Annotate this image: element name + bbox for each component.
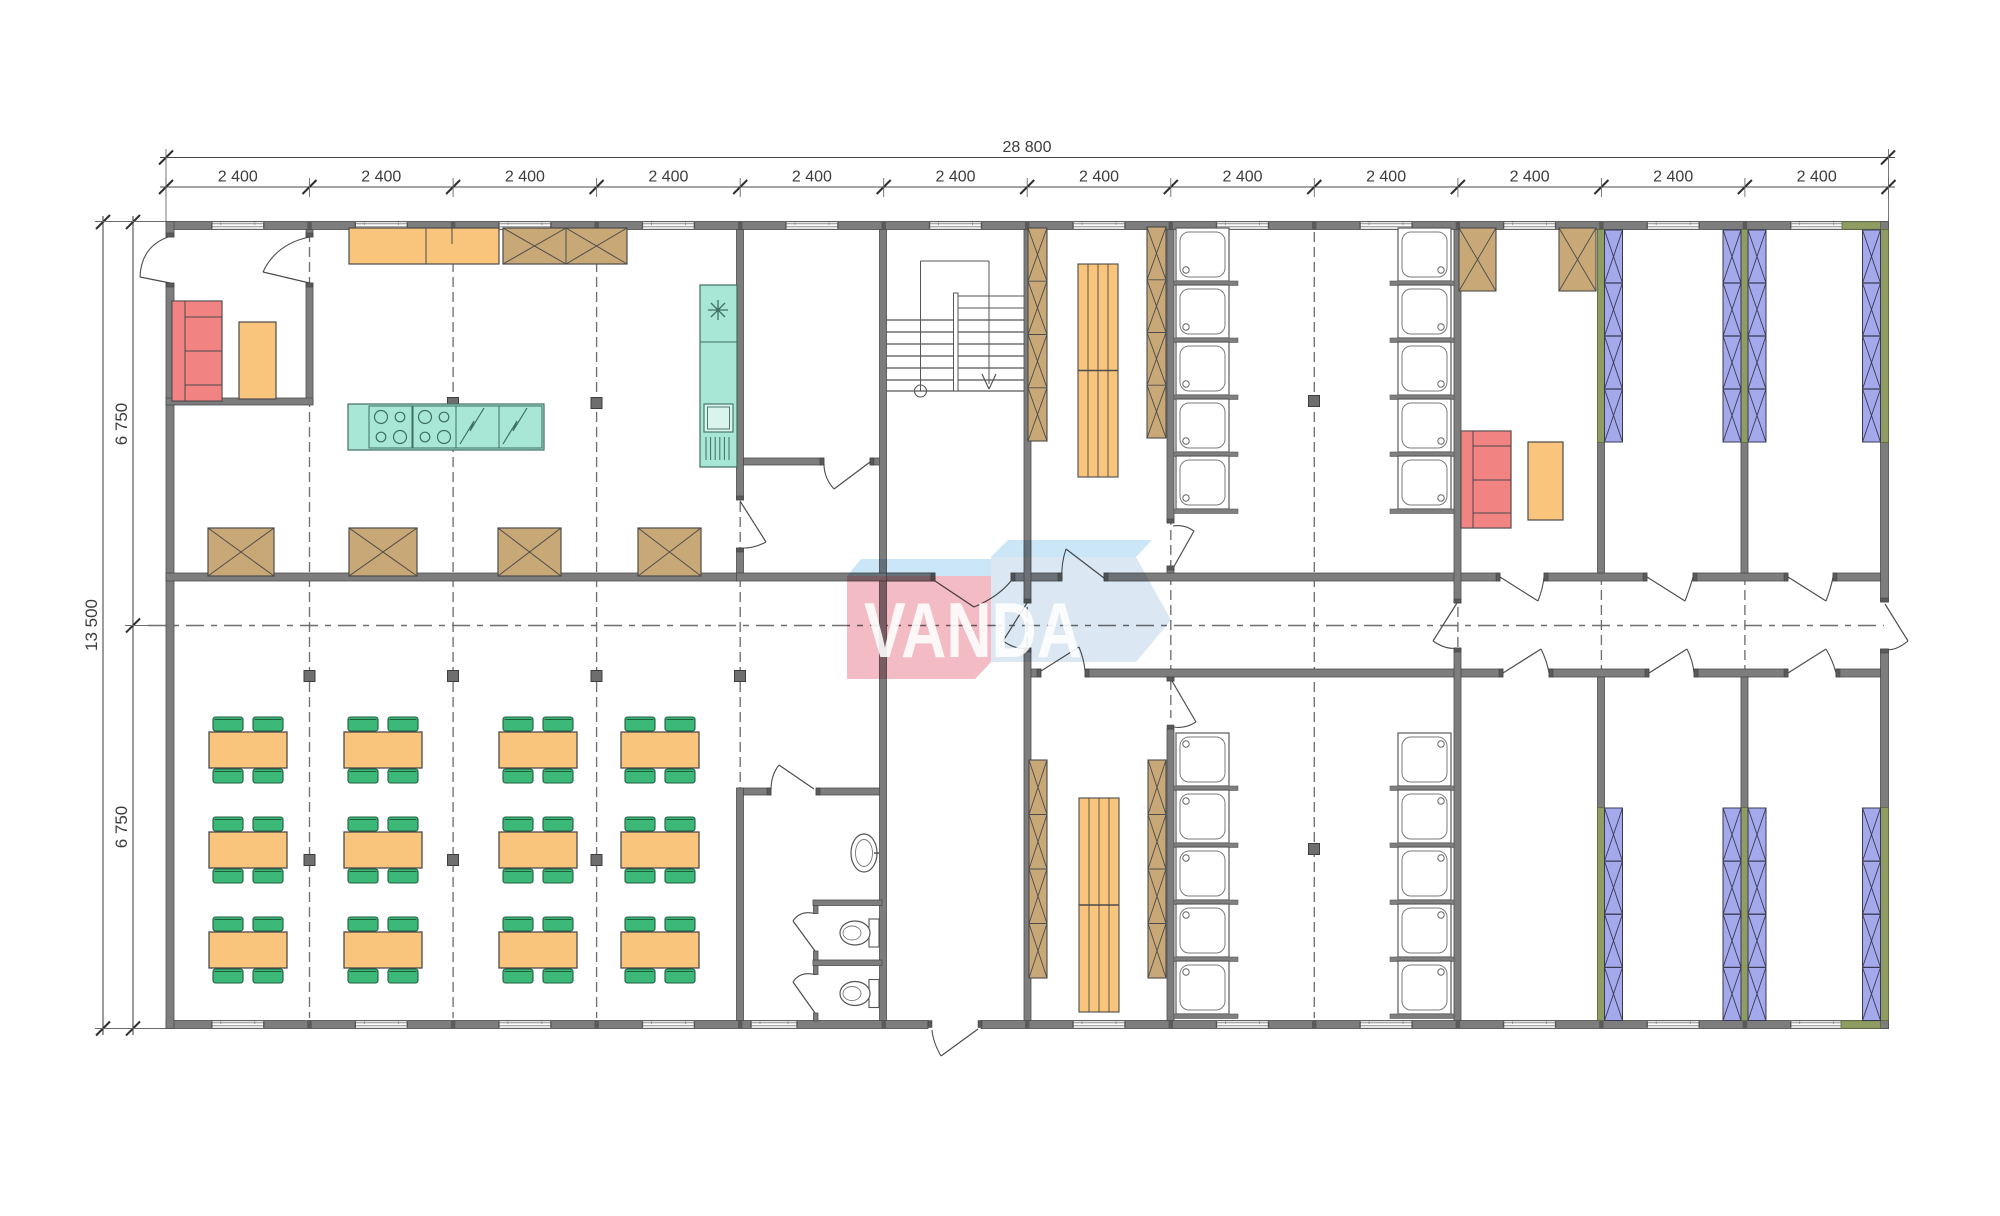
svg-text:6 750: 6 750 (112, 806, 131, 849)
svg-text:VANDA: VANDA (864, 586, 1082, 674)
svg-text:2 400: 2 400 (935, 169, 975, 186)
svg-text:2 400: 2 400 (1366, 169, 1406, 186)
svg-text:2 400: 2 400 (1222, 169, 1262, 186)
svg-text:28 800: 28 800 (1003, 139, 1052, 156)
svg-text:2 400: 2 400 (1797, 169, 1837, 186)
svg-text:2 400: 2 400 (218, 169, 258, 186)
svg-text:2 400: 2 400 (792, 169, 832, 186)
svg-text:6 750: 6 750 (112, 403, 131, 446)
svg-text:2 400: 2 400 (361, 169, 401, 186)
svg-text:2 400: 2 400 (1079, 169, 1119, 186)
svg-text:13 500: 13 500 (82, 599, 101, 651)
svg-text:2 400: 2 400 (1510, 169, 1550, 186)
svg-text:2 400: 2 400 (505, 169, 545, 186)
svg-text:2 400: 2 400 (1653, 169, 1693, 186)
svg-text:2 400: 2 400 (648, 169, 688, 186)
